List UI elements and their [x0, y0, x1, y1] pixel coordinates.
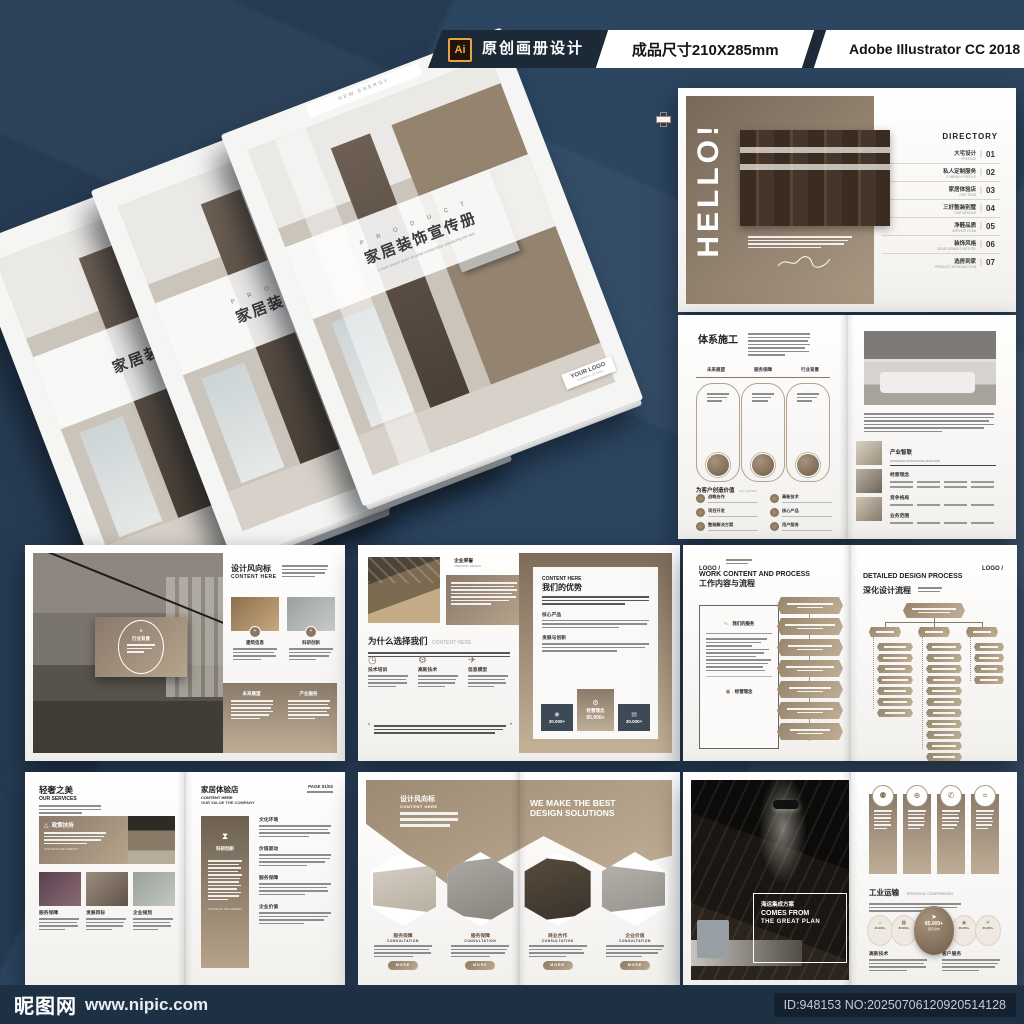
flowchart — [863, 603, 1005, 753]
solutions-left-heading: 设计风向标 CONTENT HERE — [400, 794, 458, 827]
banquet-photo — [39, 872, 81, 906]
more-button: MORE — [620, 961, 650, 970]
services-heading: 轻奢之美 OUR SERVICES — [39, 784, 101, 814]
bedroom-photo — [86, 872, 128, 906]
sofa-photo — [864, 331, 996, 405]
sofa-caption — [864, 411, 994, 432]
spread-process: LOGO / WORK CONTENT AND PROCESS 工作内容与流程 … — [683, 545, 1017, 761]
towel — [697, 920, 729, 958]
stat-right: ▤ 30.000+ — [618, 704, 650, 731]
chart-icon: ∿ — [724, 621, 728, 627]
pillar-row: ⚉ ⊕ ✆ ⌗ — [869, 794, 999, 874]
system-header: 体系施工 — [698, 331, 810, 356]
plane-icon: ✈ — [468, 655, 512, 666]
illustrator-icon: Ai — [448, 38, 472, 62]
more-button: MORE — [388, 961, 418, 970]
value-grid: 战略合作 高新技术 项目开发 核心产品 整装解决方案 用户服务 — [696, 489, 836, 531]
street-photo — [133, 872, 175, 906]
stat-circles: ⌂ 30.000+ ▦ 30.000+ ➤ 85.000+ 团队协作 ◉ 30.… — [867, 906, 1001, 955]
capsule-industry — [786, 383, 830, 482]
service-list-box: ∿ 我们的服务 ▣ 经营理念 — [699, 605, 779, 749]
image-id: ID:948153 NO:20250706120920514128 — [774, 993, 1016, 1017]
spread-system: 体系施工 未来展望 服务保障 行业背景 为客户创造价值 ALL LAYOUT 战… — [678, 315, 1016, 539]
industry-card: ❝ 行业背景 — [95, 617, 187, 677]
site-footer: 昵图网 www.nipic.com ID:948153 NO:202507061… — [0, 985, 1024, 1024]
spread-services: 轻奢之美 OUR SERVICES △ 政策扶持 OUR VALUE THE C… — [25, 772, 345, 988]
card-label: 行业背景 — [119, 636, 163, 642]
pillar: ⚉ — [869, 794, 897, 874]
spread-design-trend: ❝ 行业背景 设计风向标 CONTENT HERE + 建筑信息 + 科研创新 … — [25, 545, 345, 761]
hex-photo-frame — [447, 852, 513, 926]
hex-photo-frame — [525, 852, 591, 926]
why-heading: 为什么选择我们 CONTENT HERE — [368, 631, 510, 657]
design-header: 设计风向标 CONTENT HERE — [231, 563, 328, 580]
banner-title: 原创画册设计 — [482, 30, 584, 68]
hello-heading: HELLO! — [692, 122, 726, 258]
dining-photo — [128, 816, 175, 864]
site-url: www.nipic.com — [85, 995, 208, 1015]
advantage-panel: CONTENT HERE 我们的优势 核心产品 发展与创新 ◉ 30.000+ … — [519, 553, 672, 753]
banner-size-segment: 成品尺寸210X285mm — [596, 30, 814, 68]
feature-columns: ◷ 技术培训 ⚙ 高新技术 ✈ 信息模型 — [368, 655, 512, 687]
advantage-card: CONTENT HERE 我们的优势 核心产品 发展与创新 ◉ 30.000+ … — [533, 567, 658, 739]
gear-icon: ⚙ — [418, 655, 462, 666]
rocket-icon: ➤ — [914, 913, 954, 921]
brochure-mockup-stack: 家居装饰宣传册 P R O D U C T 家居装饰宣传册 P R O D U … — [0, 58, 694, 540]
solutions-right-heading: WE MAKE THE BEST DESIGN SOLUTIONS — [530, 798, 615, 818]
person-icon: ⚉ — [872, 785, 894, 807]
directory-list: 大宅设计PREFACE|01 私人定制服务COMPANY PROFILE|02 … — [882, 146, 1000, 271]
hex-photo-frame — [602, 852, 668, 926]
experience-header: 家居体验店 CONTENT HERE OUR VALUE THE COMPANY… — [201, 784, 333, 805]
wall-lamp — [773, 800, 799, 809]
experience-sections: 文化环境 价值驱动 服务保障 企业价值 — [259, 816, 333, 924]
directory-item: 净醛品质SERVICE FLOW|05 — [882, 217, 1000, 235]
service-items — [706, 638, 772, 671]
thumb-column — [856, 441, 882, 521]
research-card: ⧗ 科研创新 OUR VALUE THE COMPANY — [201, 816, 249, 968]
hex-photo-frame — [370, 852, 436, 926]
directory-item: 家居体验店OUR TEAM|03 — [882, 181, 1000, 199]
design-bottom-band: 未来展望 产业服务 — [223, 683, 337, 753]
stat-center: ⚙ 经营理念 85.000+ — [577, 689, 614, 731]
pillar: ⊕ — [903, 794, 931, 874]
directory-item: 大宅设计PREFACE|01 — [882, 146, 1000, 163]
plan-text-box: 海运集成方案 COMES FROM THE GREAT PLAN — [753, 893, 847, 963]
flow-col-1 — [877, 643, 913, 717]
page-number: PAGE 01/02 — [307, 784, 333, 789]
more-button: MORE — [543, 961, 573, 970]
globe-icon: ⊕ — [906, 785, 928, 807]
top-banner: Ai 原创画册设计 成品尺寸210X285mm Adobe Illustrato… — [0, 30, 1024, 68]
stat-left: ◉ 30.000+ — [541, 704, 573, 731]
design-photos: + 建筑信息 + 科研创新 — [231, 597, 335, 660]
showroom-photo — [368, 557, 440, 623]
directory-item: 私人定制服务COMPANY PROFILE|02 — [882, 163, 1000, 181]
gear-icon: ⚙ — [592, 699, 598, 707]
policy-banner: △ 政策扶持 OUR VALUE THE COMPANY — [39, 816, 175, 864]
book-icon: ▣ — [726, 689, 731, 695]
spread-hello-directory: HELLO! DIRECTORY 大宅设计PREFACE|01 私人定制服务CO… — [678, 88, 1016, 312]
logo-right: LOGO / — [982, 557, 1003, 575]
spread-solutions: 设计风向标 CONTENT HERE WE MAKE THE BEST DESI… — [358, 772, 680, 988]
directory-item: 选房到家PRODUCT INTRODUCTION|07 — [882, 253, 1000, 271]
directory-item: 装饰风格DEVELOPMENT HISTORY|06 — [882, 235, 1000, 253]
process-chain — [777, 597, 843, 740]
clock-icon: ◷ — [368, 655, 412, 666]
site-logo: 昵图网 — [14, 990, 77, 1019]
quote-open: ❝ — [119, 629, 163, 636]
directory-heading: DIRECTORY — [942, 132, 998, 141]
capsule-future — [696, 383, 740, 482]
closet-photo — [740, 130, 890, 226]
more-button: MORE — [465, 961, 495, 970]
system-title: 体系施工 — [698, 331, 738, 356]
process-right-title: DETAILED DESIGN PROCESS 深化设计流程 — [863, 573, 962, 598]
quote-block: “ ” — [368, 723, 512, 734]
big-stat-circle: ➤ 85.000+ 团队协作 — [914, 906, 954, 955]
hourglass-icon: ⧗ — [222, 831, 228, 841]
services-thumbs: 服务保障 发展目标 企业规划 — [39, 872, 175, 930]
plus-icon — [656, 112, 670, 126]
pillar: ⌗ — [971, 794, 999, 874]
spread-why-us: 企业荣誉 CREATIVE / DESIGN 为什么选择我们 CONTENT H… — [358, 545, 680, 761]
industry-block: 产业智联 STRATEGIC POSITIONING FUNCTION 经营理念… — [890, 441, 996, 524]
flow-col-3 — [974, 643, 1004, 684]
lock-icon: + — [305, 626, 317, 638]
lock-icon: + — [249, 626, 261, 638]
process-left-title: WORK CONTENT AND PROCESS 工作内容与流程 — [699, 571, 810, 589]
system-capsules — [696, 383, 830, 482]
stat-row: ◉ 30.000+ ⚙ 经营理念 85.000+ ▤ 30.000+ — [541, 689, 650, 731]
corner-label: 企业荣誉 CREATIVE / DESIGN — [454, 557, 481, 568]
printer-icon: ▤ — [631, 711, 637, 718]
print-size-label: 成品尺寸210X285mm — [632, 39, 779, 60]
software-label: Adobe Illustrator CC 2018 — [849, 41, 1020, 57]
system-columns: 未来展望 服务保障 行业背景 — [696, 367, 830, 373]
pillar: ✆ — [937, 794, 965, 874]
honor-box — [446, 575, 522, 625]
phone-icon: ✆ — [940, 785, 962, 807]
signature — [776, 254, 832, 270]
directory-item: 三好整装别墅OUR SERVICE|04 — [882, 199, 1000, 217]
spread-great-plan: 海运集成方案 COMES FROM THE GREAT PLAN ⚉ ⊕ ✆ ⌗… — [683, 772, 1017, 988]
flow-col-2 — [926, 643, 962, 761]
monitor-icon: ⌗ — [974, 785, 996, 807]
hello-caption — [748, 234, 852, 248]
badge-icon: ◉ — [554, 711, 559, 718]
capsule-service — [741, 383, 785, 482]
marble-photo: 海运集成方案 COMES FROM THE GREAT PLAN — [691, 780, 849, 980]
triangle-icon: △ — [44, 822, 49, 829]
banner-software-segment: Adobe Illustrator CC 2018 — [814, 30, 1024, 68]
